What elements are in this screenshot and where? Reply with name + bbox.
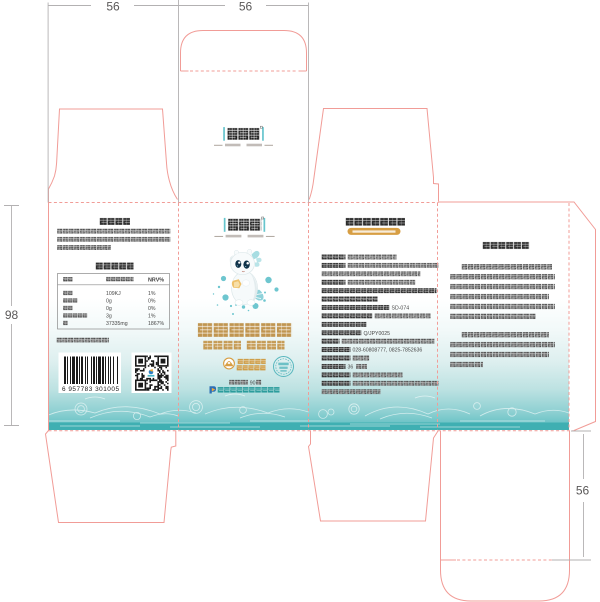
svg-text:90: 90 <box>250 380 256 386</box>
svg-text:109KJ: 109KJ <box>106 291 121 297</box>
svg-text:0g: 0g <box>106 306 112 312</box>
svg-text:028-60808777, 0825-7852636: 028-60808777, 0825-7852636 <box>353 348 423 354</box>
svg-text:37335mg: 37335mg <box>106 321 128 327</box>
svg-text:1867%: 1867% <box>148 321 165 327</box>
svg-text:56: 56 <box>576 484 590 498</box>
svg-text:Q/JPY0025: Q/JPY0025 <box>364 331 391 337</box>
svg-text:36: 36 <box>348 365 354 371</box>
svg-text:0%: 0% <box>148 306 156 312</box>
svg-text:NRV%: NRV% <box>148 278 164 284</box>
svg-text:98: 98 <box>5 308 19 322</box>
svg-text:56: 56 <box>239 0 253 14</box>
svg-text:1%: 1% <box>148 314 156 320</box>
svg-text:6 957783 301005: 6 957783 301005 <box>62 386 119 393</box>
svg-text:0g: 0g <box>106 299 112 305</box>
svg-text:1%: 1% <box>148 291 156 297</box>
svg-text:SD-074: SD-074 <box>392 306 410 312</box>
svg-text:3g: 3g <box>106 314 112 320</box>
svg-text:0%: 0% <box>148 299 156 305</box>
svg-text:56: 56 <box>106 0 120 14</box>
